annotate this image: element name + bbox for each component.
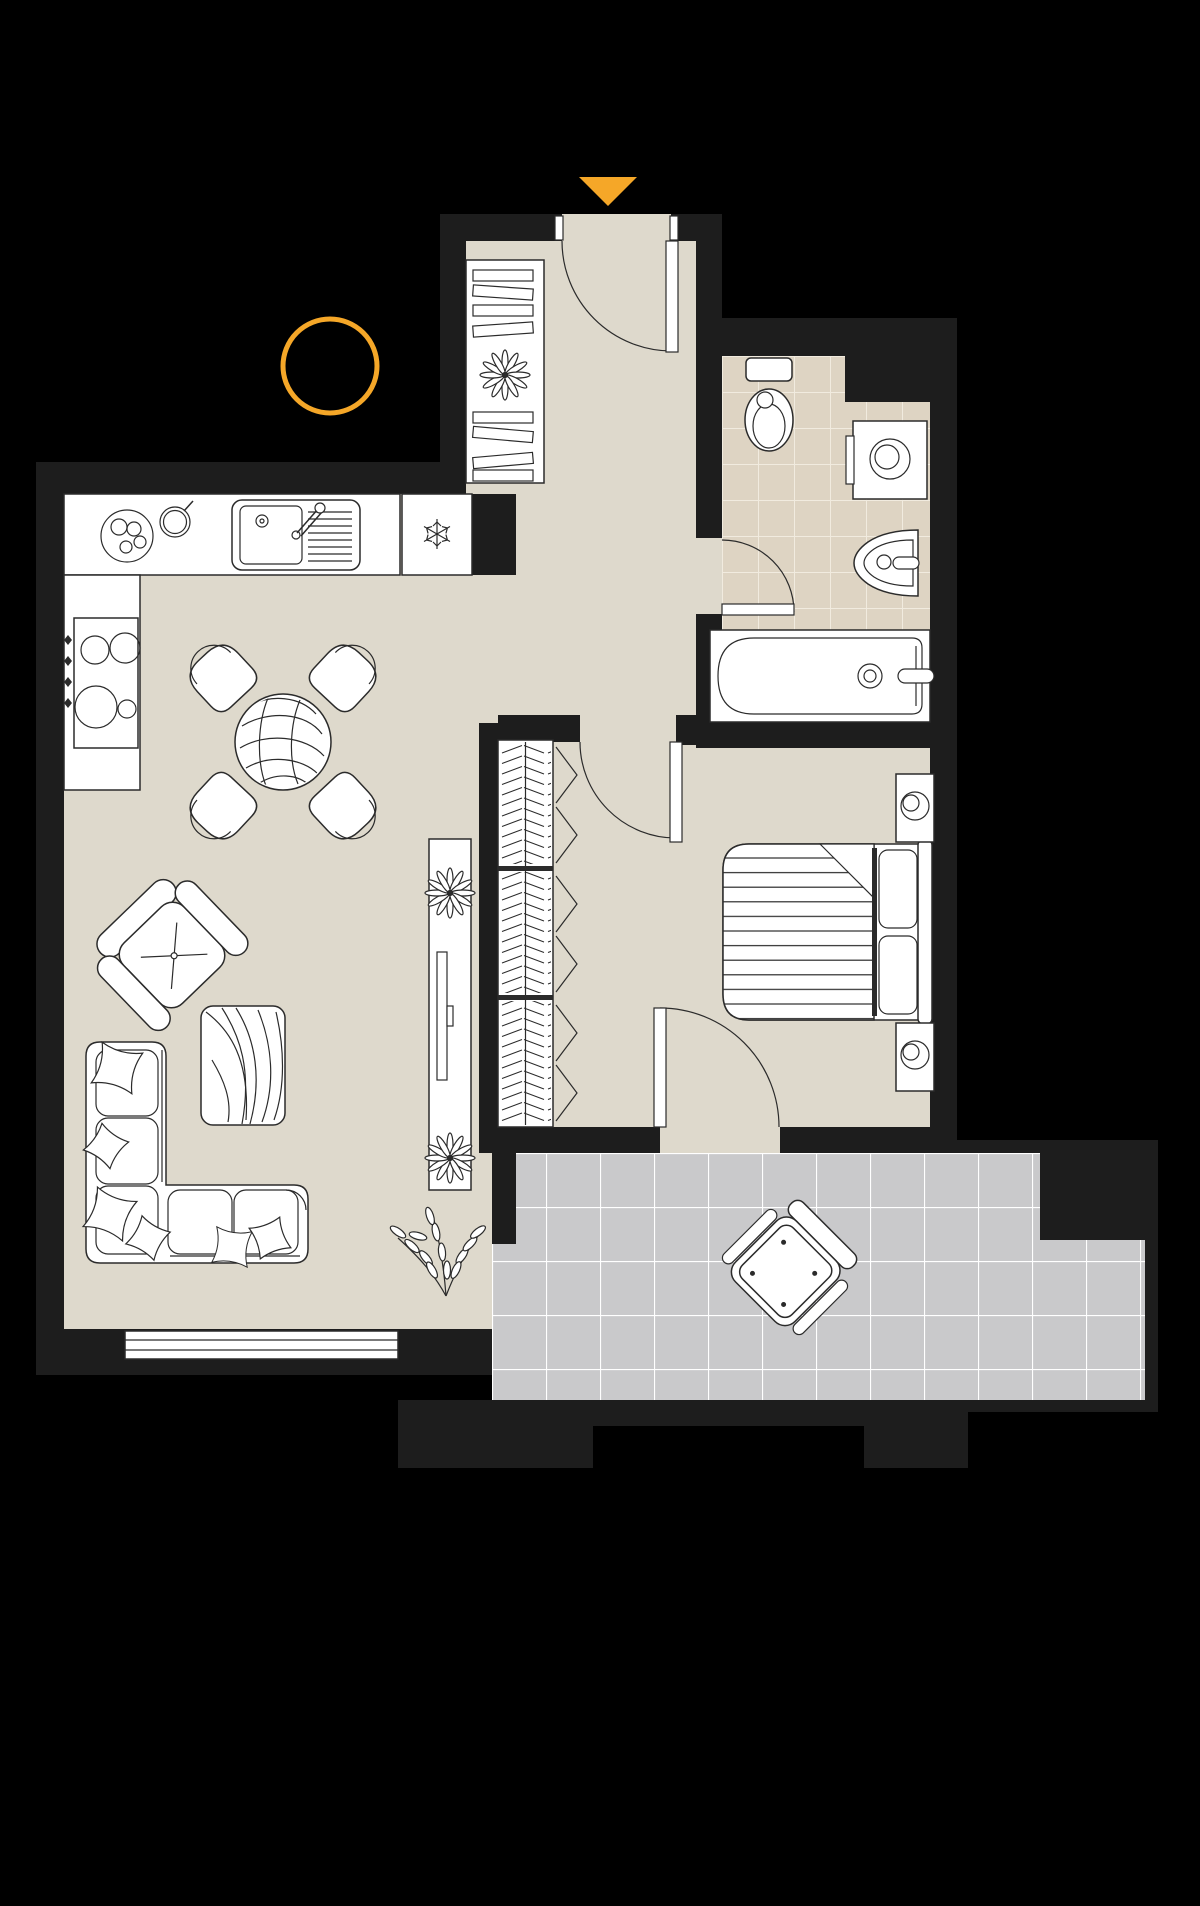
entry-door-leaf [666,241,678,352]
hallway [466,260,544,483]
kitchen-wall-stub [472,494,516,575]
bathroom-niche [845,318,935,402]
tv-mount [447,1006,453,1026]
balcony-door-opening [660,1127,780,1155]
kitchen-plate [101,510,153,562]
tv-console [425,839,475,1190]
washing-machine [846,421,927,499]
bookshelf [466,260,544,483]
floor-plan [0,0,1200,1906]
highlight-circle [283,319,377,413]
living-bedroom-divider [479,723,498,1153]
kitchen-sink [232,500,360,570]
bathroom-door-opening [696,538,722,616]
stove [64,575,140,790]
door-jamb [555,216,563,240]
bed-pillow [879,936,917,1014]
double-bed [723,840,932,1024]
bed-pillow [879,850,917,928]
fridge-freezer [402,494,472,575]
door-jamb [670,216,678,240]
headboard [918,840,932,1024]
balcony-corner-block [1040,1153,1158,1240]
toilet [745,358,793,451]
entry-threshold [562,214,671,243]
bathtub-faucet [898,669,934,683]
living-room-window [125,1331,398,1359]
bathtub [710,630,934,722]
balcony-left-stub [492,1153,516,1244]
door-leaf [670,742,682,842]
tv [437,952,447,1080]
sofa-pillow [212,1227,252,1267]
door-leaf [654,1008,666,1127]
door-leaf [722,604,794,615]
coffee-table [201,1006,285,1125]
entry-arrow-icon [579,177,637,206]
floor-plan-svg [0,0,1200,1906]
nightstand [896,774,934,842]
bedroom-door-opening [580,715,676,744]
nightstand [896,1023,934,1091]
